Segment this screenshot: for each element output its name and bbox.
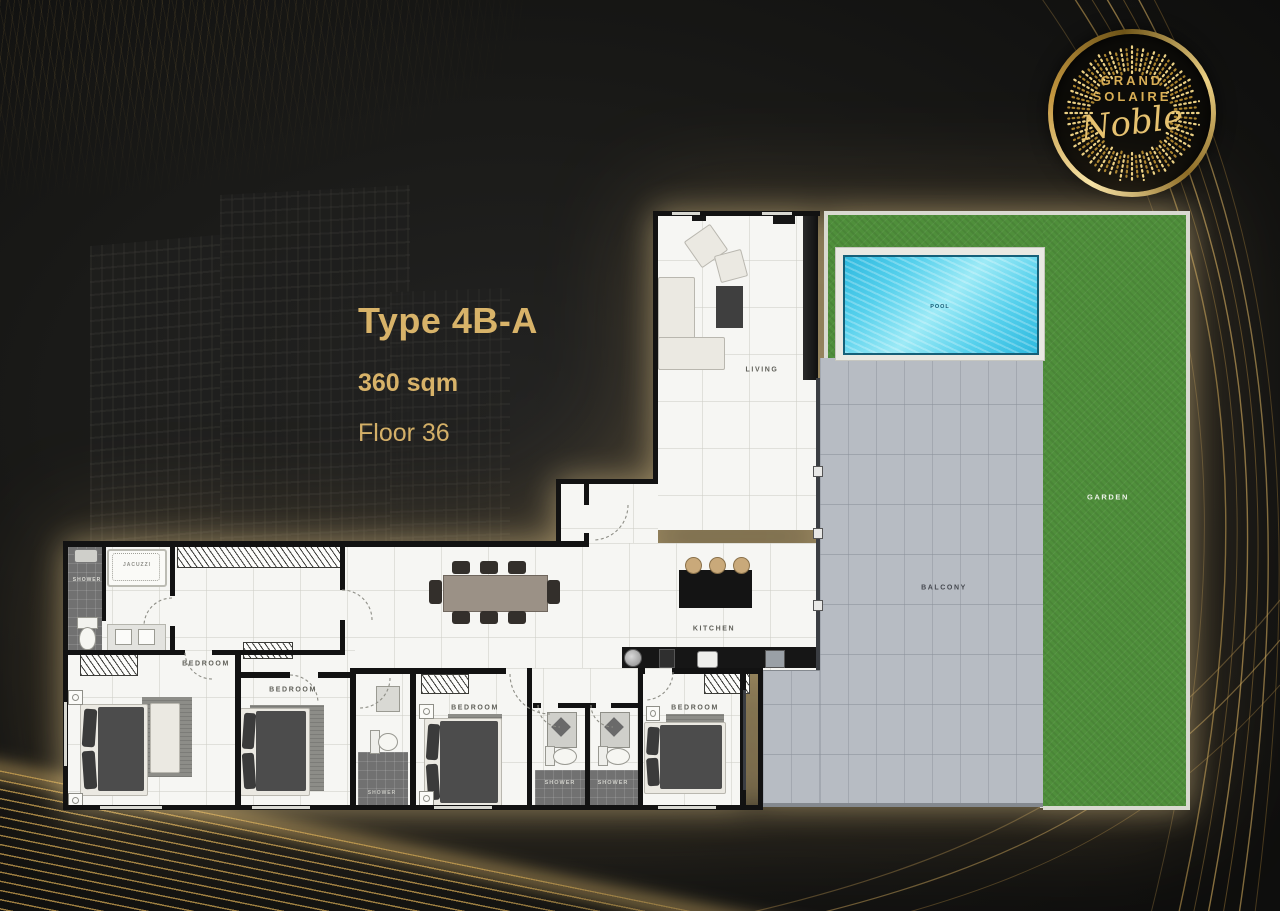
room-label-garden: GARDEN <box>1087 493 1129 502</box>
sofa-chaise <box>658 337 725 370</box>
shower2-floor <box>535 770 585 808</box>
room-label-shower-master: SHOWER <box>73 577 102 583</box>
sink <box>115 629 132 645</box>
tv-wall <box>803 214 818 380</box>
kitchen-island <box>679 570 752 608</box>
room-label-bedroom2: BEDROOM <box>269 687 317 694</box>
kitchen-sink <box>697 651 718 668</box>
garden-area-right <box>1043 215 1190 808</box>
shower-head <box>74 549 98 563</box>
wall-segment <box>350 668 356 810</box>
bed-duvet <box>256 711 306 791</box>
wall-segment <box>410 668 416 810</box>
fridge <box>765 650 785 668</box>
toilet <box>606 748 630 765</box>
toilet <box>79 627 96 650</box>
cooktop <box>624 649 642 667</box>
wall-segment <box>63 650 185 655</box>
room-label-shower2: SHOWER <box>545 780 576 786</box>
wall-segment <box>558 703 596 708</box>
wall-segment <box>584 479 658 484</box>
room-label-jacuzzi: JACUZZI <box>123 562 151 568</box>
wall-segment <box>653 211 658 484</box>
wall-segment <box>340 620 345 655</box>
dining-table <box>443 575 548 612</box>
room-label-living: LIVING <box>746 367 779 374</box>
window <box>252 806 310 809</box>
oven <box>659 649 675 668</box>
wall-segment <box>170 541 175 596</box>
wall-segment <box>102 541 106 621</box>
balcony-area <box>820 358 1043 805</box>
sink <box>138 629 155 645</box>
bed-duvet <box>660 725 722 789</box>
balcony-area-lower <box>763 670 820 805</box>
room-label-shower1: SHOWER <box>368 790 397 796</box>
floor-plan: LIVING KITCHEN BEDROOM BEDROOM BEDROOM B… <box>0 0 1280 911</box>
bed-duvet <box>98 707 144 791</box>
hall-floor <box>586 481 658 547</box>
wall-segment <box>585 703 590 810</box>
wall-segment <box>638 668 643 810</box>
shower3-floor <box>588 770 638 808</box>
bar-stool <box>709 557 726 574</box>
coffee-table <box>716 286 743 328</box>
window <box>762 212 792 215</box>
room-label-pool: POOL <box>930 304 950 310</box>
master-closet <box>177 546 345 568</box>
wall-segment <box>340 541 345 590</box>
sink <box>376 686 400 712</box>
bar-stool <box>733 557 750 574</box>
kitchen-counter <box>622 647 816 668</box>
toilet <box>378 733 398 751</box>
bedroom1-closet <box>80 652 138 676</box>
wall-segment <box>556 479 561 546</box>
window <box>658 806 716 809</box>
wall-segment <box>527 668 532 810</box>
window <box>672 212 700 215</box>
shower1-floor <box>358 752 408 806</box>
chaise-lounge <box>150 703 180 773</box>
wall-segment <box>241 672 290 678</box>
room-label-shower3: SHOWER <box>598 780 629 786</box>
wall-segment <box>356 668 506 674</box>
wall-segment <box>63 541 589 547</box>
wall-segment <box>672 668 763 674</box>
window <box>434 806 492 809</box>
wall-segment <box>758 668 763 810</box>
wall-segment <box>533 703 541 708</box>
room-label-kitchen: KITCHEN <box>693 626 735 633</box>
wall-segment <box>63 541 68 810</box>
brochure-page: GRAND SOLAIRE Noble Type 4B-A 360 sqm Fl… <box>0 0 1280 911</box>
wall-segment <box>170 626 175 655</box>
bedroom3-closet <box>421 674 469 694</box>
bar-stool <box>685 557 702 574</box>
wall-segment <box>643 668 645 674</box>
room-label-balcony: BALCONY <box>921 585 967 592</box>
window <box>100 806 162 809</box>
toilet <box>553 748 577 765</box>
bed-duvet <box>440 721 498 803</box>
room-label-bedroom3: BEDROOM <box>451 705 499 712</box>
window <box>64 702 67 766</box>
room-label-bedroom1: BEDROOM <box>182 661 230 668</box>
room-label-bedroom4: BEDROOM <box>671 705 719 712</box>
sliding-glass-door <box>816 378 820 670</box>
wall-segment <box>212 650 345 655</box>
